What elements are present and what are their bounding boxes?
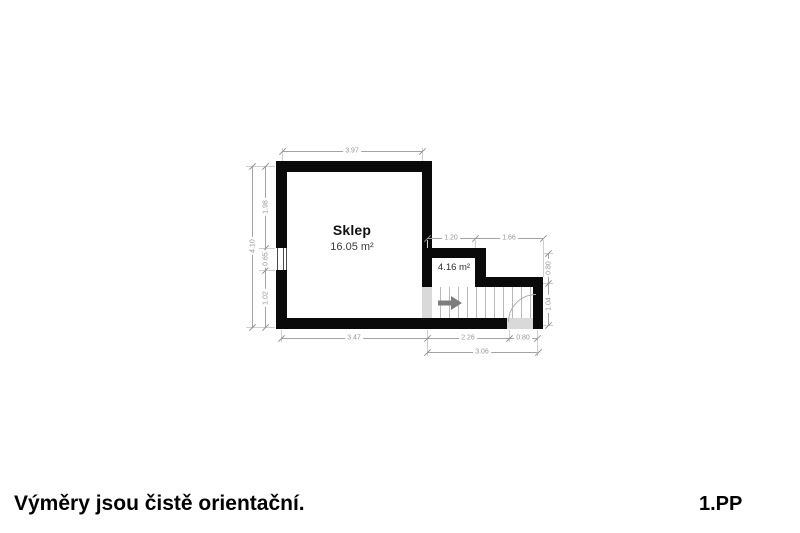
- room-label-sklep: Sklep 16.05 m²: [302, 222, 402, 253]
- door-opening-stairs: [422, 287, 432, 318]
- dim-extension-line: [259, 270, 275, 271]
- wall-bottom: [276, 318, 507, 329]
- dim-label-upper-right-2: 1.66: [500, 235, 518, 242]
- room-area: 16.05 m²: [302, 241, 402, 253]
- dim-extension-line: [543, 240, 544, 277]
- wall-top: [276, 161, 432, 172]
- disclaimer-text: Výměry jsou čistě orientační.: [14, 492, 305, 516]
- dim-label-bottom-seg-3: 0.80: [514, 335, 532, 342]
- window-frame-line: [283, 248, 284, 270]
- dim-line-bottom: [281, 338, 538, 339]
- dim-label-upper-right-1: 1.20: [442, 235, 460, 242]
- dim-label-left-total: 4.10: [250, 237, 257, 255]
- window-frame-line: [286, 248, 287, 270]
- dim-label-right-seg-1: 0.80: [546, 259, 553, 277]
- dim-label-left-seg-1: 1.98: [263, 198, 270, 216]
- window-frame-line: [277, 248, 278, 270]
- dim-label-left-seg-2: 0.65: [263, 250, 270, 268]
- stair-direction-arrow-icon: [438, 296, 462, 310]
- dim-extension-line: [427, 240, 428, 248]
- dim-label-left-seg-3: 1.02: [263, 289, 270, 307]
- room-label-stair-area: 4.16 m²: [429, 262, 479, 273]
- floorplan-canvas: Sklep 16.05 m² 4.16 m² 3.97 4.10 1.98: [0, 0, 800, 533]
- dim-label-right-seg-2: 1.04: [546, 295, 553, 313]
- dim-label-bottom-seg-1: 3.47: [345, 335, 363, 342]
- wall-left-upper: [276, 161, 287, 248]
- dim-label-bottom-total: 3.06: [473, 349, 491, 356]
- dim-extension-line: [259, 248, 275, 249]
- dim-label-top-width: 3.97: [343, 148, 361, 155]
- window-symbol: [276, 248, 287, 270]
- dim-extension-line: [475, 240, 476, 248]
- room-name: Sklep: [302, 222, 402, 238]
- floor-label: 1.PP: [699, 493, 742, 516]
- dim-label-bottom-seg-2: 2.26: [459, 335, 477, 342]
